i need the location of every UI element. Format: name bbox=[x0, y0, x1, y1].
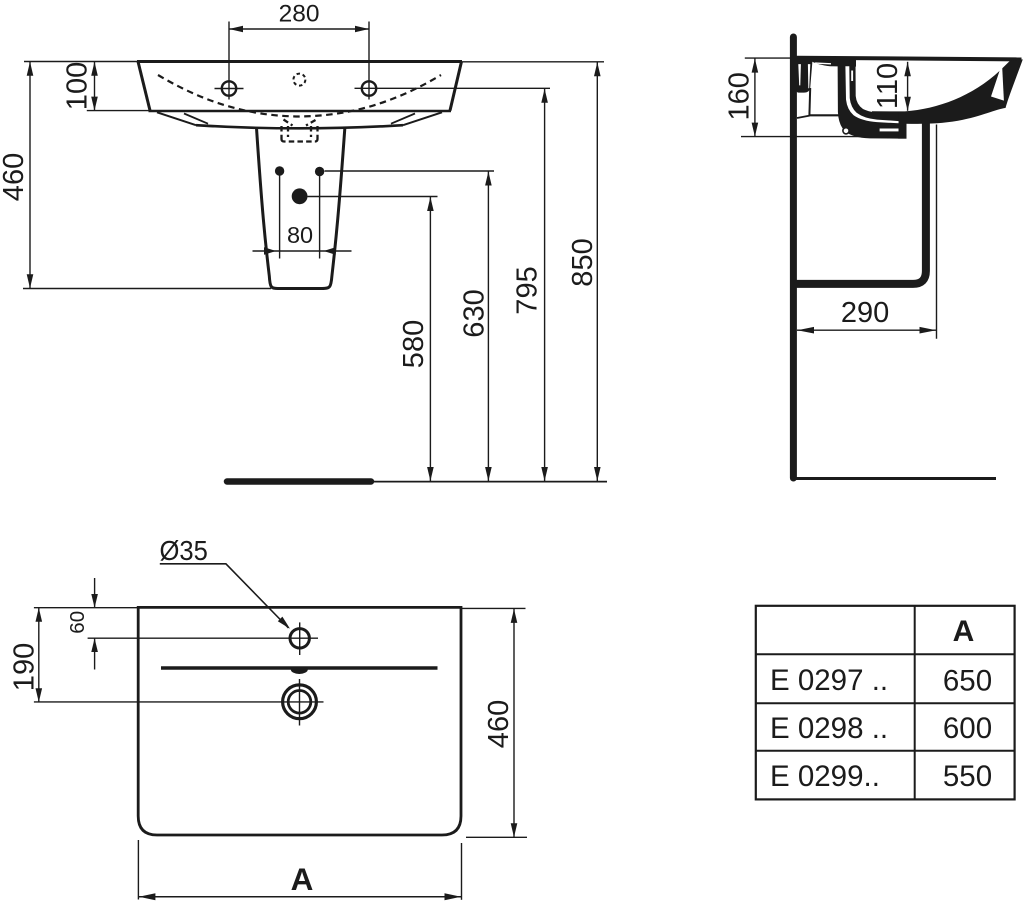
svg-text:110: 110 bbox=[872, 63, 904, 109]
svg-text:A: A bbox=[953, 615, 975, 648]
svg-text:80: 80 bbox=[287, 222, 313, 248]
svg-text:580: 580 bbox=[398, 320, 430, 368]
svg-text:100: 100 bbox=[62, 62, 94, 110]
svg-text:630: 630 bbox=[459, 289, 491, 337]
svg-text:190: 190 bbox=[8, 643, 40, 691]
svg-text:550: 550 bbox=[943, 760, 992, 793]
svg-text:60: 60 bbox=[66, 611, 89, 634]
svg-text:650: 650 bbox=[943, 665, 992, 698]
svg-text:460: 460 bbox=[483, 700, 515, 748]
svg-text:E 0298 ..: E 0298 .. bbox=[770, 712, 888, 745]
svg-text:280: 280 bbox=[279, 1, 320, 28]
svg-text:A: A bbox=[291, 861, 314, 897]
svg-text:795: 795 bbox=[512, 266, 544, 314]
svg-text:600: 600 bbox=[943, 712, 992, 745]
svg-text:E 0299..: E 0299.. bbox=[770, 760, 880, 793]
svg-text:850: 850 bbox=[567, 238, 599, 286]
svg-text:160: 160 bbox=[723, 72, 755, 120]
svg-text:Ø35: Ø35 bbox=[160, 535, 208, 566]
svg-text:E 0297 ..: E 0297 .. bbox=[770, 664, 888, 697]
svg-text:290: 290 bbox=[841, 297, 889, 329]
svg-text:460: 460 bbox=[0, 153, 30, 201]
